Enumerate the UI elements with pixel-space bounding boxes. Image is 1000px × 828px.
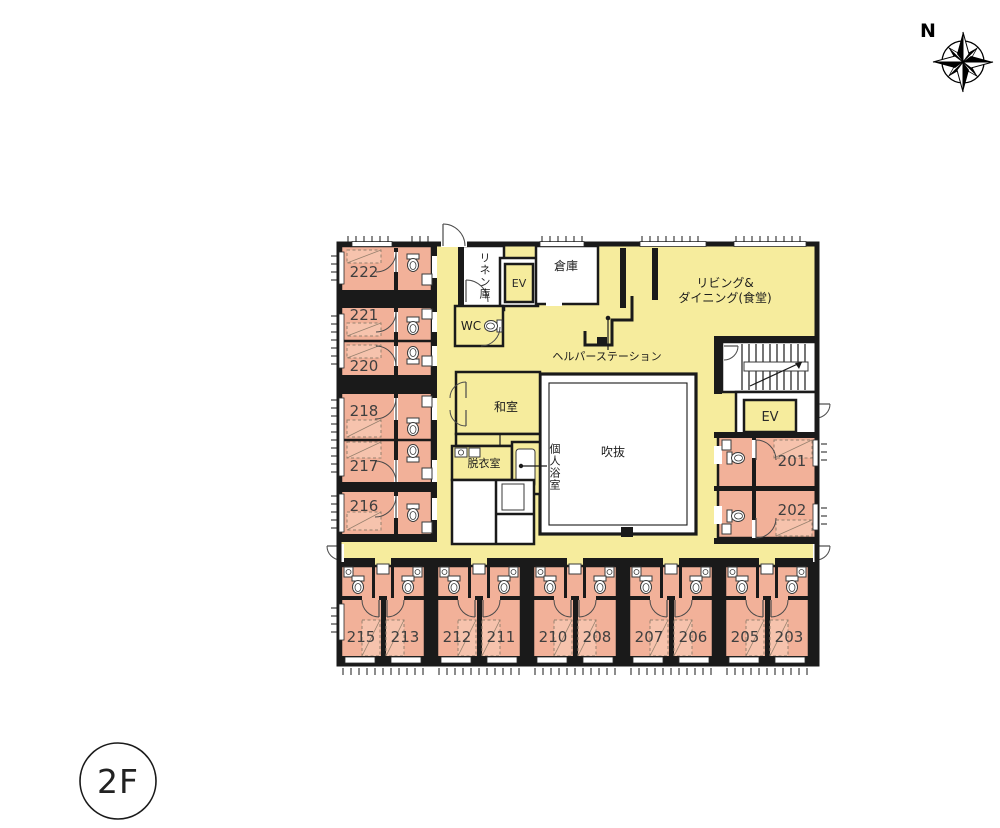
private-bath-label: 個人浴室 [549, 443, 560, 491]
room-label-213: 213 [391, 628, 420, 646]
bottom-row: 215 213 212 211 210 208 [341, 558, 817, 664]
room-label-205: 205 [731, 628, 760, 646]
entry-door-top [441, 224, 467, 247]
room-label-221: 221 [350, 306, 379, 324]
linen-room-label: リネン庫 [479, 252, 490, 300]
dressing-room-label: 脱衣室 [468, 456, 501, 470]
room-label-207: 207 [635, 628, 664, 646]
room-block-210-208: 210 208 [533, 558, 617, 660]
room-label-216: 216 [350, 497, 379, 515]
floor-badge: 2F [80, 743, 156, 819]
room-label-208: 208 [583, 628, 612, 646]
room-block-205-203: 205 203 [725, 558, 809, 660]
room-block-212-211: 212 211 [437, 558, 521, 660]
right-wing [714, 336, 830, 544]
room-label-206: 206 [679, 628, 708, 646]
utility-rooms [452, 480, 534, 544]
room-label-211: 211 [487, 628, 516, 646]
floor-plan-canvas: 215 213 212 211 210 208 [0, 0, 1000, 828]
elevator-top-label: EV [512, 277, 527, 290]
storage-room [536, 246, 598, 306]
room-label-220: 220 [350, 357, 379, 375]
elevator-right-label: EV [761, 410, 778, 425]
compass-icon: N [920, 20, 993, 92]
floor-badge-label: 2F [97, 762, 139, 801]
stairwell [722, 342, 816, 392]
room-label-222: 222 [350, 263, 379, 281]
room-label-212: 212 [443, 628, 472, 646]
room-label-217: 217 [350, 457, 379, 475]
floor-plan-page: 215 213 212 211 210 208 [0, 0, 1000, 828]
room-label-218: 218 [350, 402, 379, 420]
atrium-label: 吹抜 [601, 445, 625, 459]
room-label-215: 215 [347, 628, 376, 646]
room-block-215-213: 215 213 [341, 558, 425, 660]
room-label-201: 201 [778, 452, 807, 470]
pillar [621, 527, 633, 537]
wc-label: WC [461, 319, 481, 333]
room-label-202: 202 [778, 501, 807, 519]
storage-label: 倉庫 [554, 258, 578, 273]
room-label-203: 203 [775, 628, 804, 646]
compass-north-label: N [920, 20, 936, 42]
helper-station-label: ヘルパーステーション [552, 350, 661, 363]
living-dining-label-line2: ダイニング(食堂) [678, 290, 771, 305]
room-label-210: 210 [539, 628, 568, 646]
japanese-room-label: 和室 [494, 399, 518, 414]
living-dining-label-line1: リビング& [696, 276, 753, 290]
room-block-207-206: 207 206 [629, 558, 713, 660]
